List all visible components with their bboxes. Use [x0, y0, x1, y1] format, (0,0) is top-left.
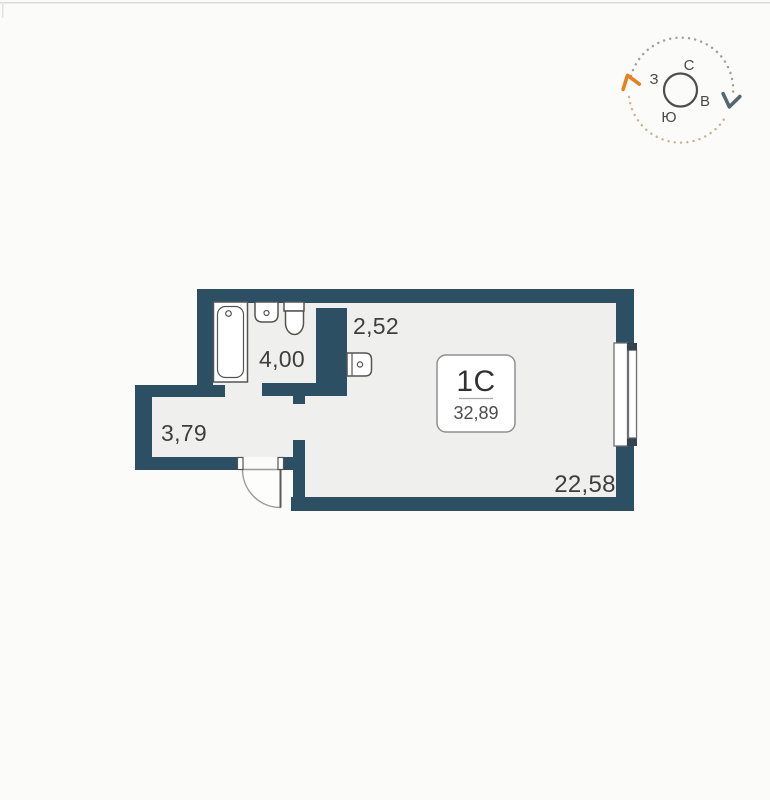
- window: [614, 343, 637, 446]
- unit-card: 1С 32,89: [437, 355, 515, 432]
- wall-entry-right-foot: [283, 457, 305, 470]
- window-inner-frame: [614, 343, 628, 446]
- window-outer-frame: [629, 350, 637, 438]
- wall-passage-stub: [293, 396, 305, 404]
- window-notch-top: [627, 343, 637, 351]
- bathtub-icon: [214, 302, 248, 382]
- compass-south-label: Ю: [661, 109, 676, 126]
- left-edge-line: [2, 2, 3, 18]
- compass-north-label: С: [684, 57, 695, 74]
- floor-plan-viewer: С З В Ю: [0, 0, 770, 800]
- rotate-ccw-arrow-icon[interactable]: [619, 73, 639, 90]
- window-notch-bottom: [627, 439, 637, 447]
- top-edge-line: [0, 2, 770, 3]
- door-jamb-left: [238, 458, 244, 470]
- kitchen-sink-icon: [347, 353, 372, 376]
- area-label-hallway: 3,79: [161, 420, 207, 446]
- door-swing-arc: [243, 470, 281, 508]
- area-label-bathroom: 4,00: [259, 346, 305, 372]
- compass-dotted-arc-bottom: [629, 97, 726, 143]
- compass-west-label: З: [649, 71, 658, 88]
- compass-dotted-arc-top: [631, 38, 733, 94]
- area-label-kitchen-niche: 2,52: [353, 313, 399, 339]
- unit-type-label: 1С: [456, 365, 495, 398]
- wall-right-upper: [616, 289, 634, 343]
- wall-bathroom-west: [197, 289, 213, 397]
- sink-icon: [255, 302, 278, 322]
- unit-total-area-label: 32,89: [453, 403, 498, 423]
- toilet-icon: [284, 302, 304, 334]
- door-jamb-right: [278, 458, 284, 470]
- wall-hallway-bottom: [135, 457, 238, 470]
- entry-door: [238, 458, 284, 508]
- wall-top: [197, 289, 634, 303]
- compass-east-label: В: [700, 93, 710, 110]
- wall-bottom: [291, 497, 634, 511]
- compass-circle: [664, 74, 697, 107]
- area-label-living-room: 22,58: [554, 471, 616, 498]
- duct-shaft-block: [316, 308, 347, 385]
- compass-rose: С З В Ю: [619, 38, 739, 143]
- rotate-cw-arrow-icon[interactable]: [721, 94, 740, 109]
